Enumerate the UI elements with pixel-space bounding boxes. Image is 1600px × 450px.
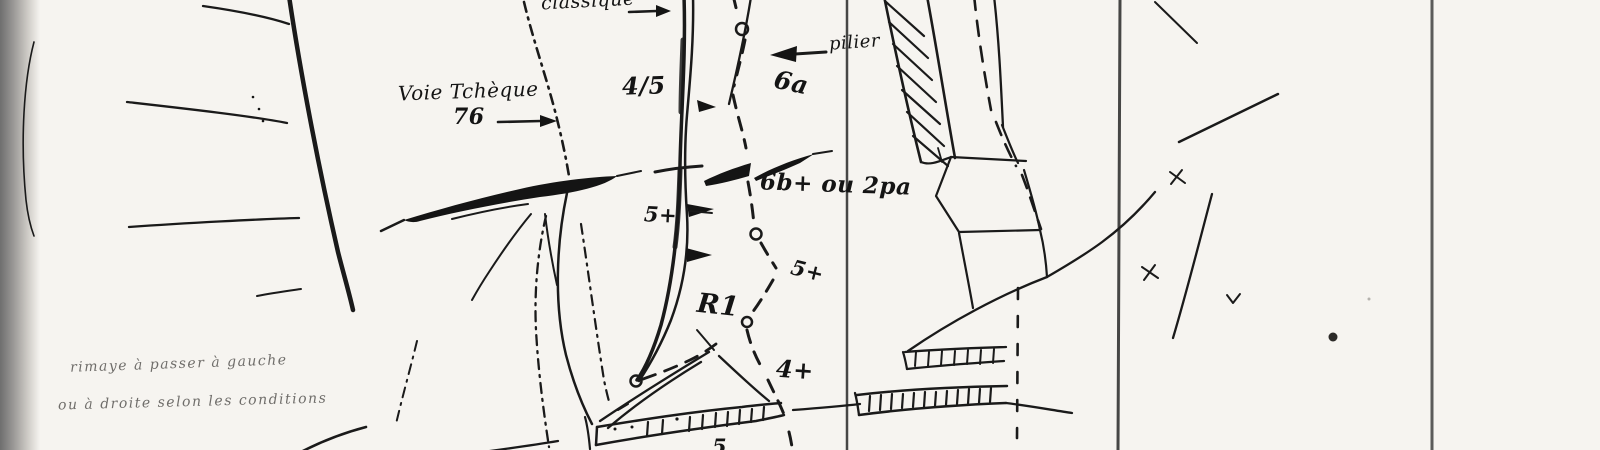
belay-circle-r1	[742, 317, 752, 327]
label-grade-partial-bottom: 5	[712, 436, 727, 450]
label-voie-tcheque-year: 76	[453, 106, 485, 128]
arrow-right-icon	[498, 115, 557, 127]
ink-dot	[1329, 298, 1371, 342]
label-voie-tcheque: Voie Tchèque	[398, 79, 539, 104]
ledge-band-right-lower	[855, 386, 1072, 415]
left-slope-lines	[23, 0, 353, 310]
cross-marks	[1142, 170, 1240, 303]
classique-route-red-line	[637, 0, 684, 380]
arrow-left-icon	[770, 46, 826, 62]
label-grade-6b-aid: 6b+ ou 2pa	[760, 170, 912, 198]
label-grade-4-5: 4/5	[622, 73, 666, 99]
label-grade-5plus-upper: 5+	[643, 203, 677, 226]
left-scan-edge	[0, 0, 40, 450]
label-belay-r1: R1	[696, 290, 741, 321]
voie-tcheque-route-line	[524, 2, 610, 447]
label-pilier: pilier	[828, 32, 880, 54]
label-grade-6a: 6a	[772, 67, 811, 99]
paper-creases	[847, 0, 1432, 450]
belay-circle	[751, 229, 762, 240]
ledge-band-bottom-left	[468, 403, 860, 450]
arrow-right-icon	[629, 5, 671, 17]
label-grade-4plus: 4+	[775, 357, 814, 384]
hatched-gully	[884, 0, 955, 166]
right-terrain-lines	[908, 2, 1278, 438]
climbing-topo-sketch: classique Voie Tchèque 76 4/5 6a pilier …	[0, 0, 1600, 450]
ledge-band-right-upper	[903, 347, 1006, 369]
